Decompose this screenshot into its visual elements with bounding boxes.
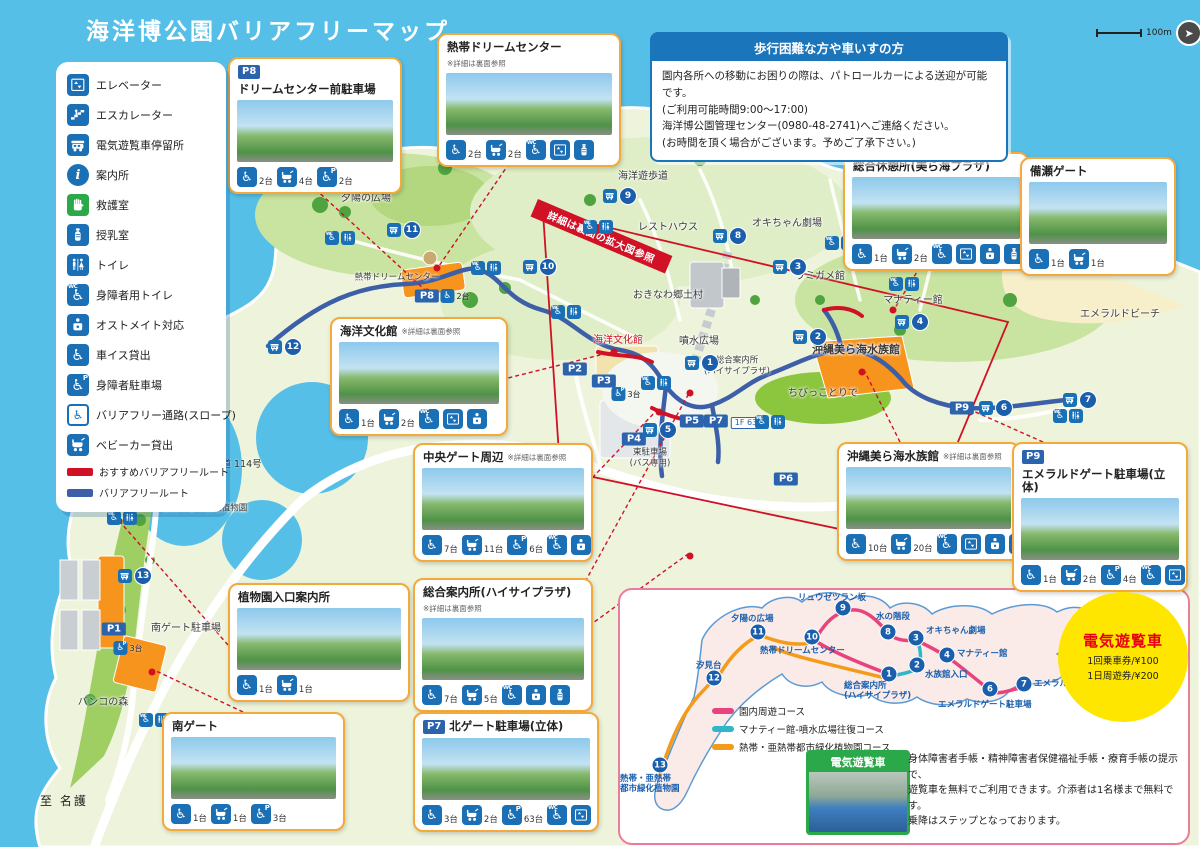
cart-icon	[895, 315, 909, 329]
ostomate-icon	[985, 534, 1005, 554]
facility	[550, 140, 570, 160]
accessible-parking-icon: ♿P	[502, 805, 522, 825]
accessible-toilet-icon: ♿WC	[419, 409, 439, 429]
facility-icons: ♿10台20台♿WC	[846, 534, 1011, 554]
legend-item-label: 救護室	[96, 197, 129, 213]
mini-stop-3: 3	[908, 630, 925, 647]
accessible-parking-icon: ♿P	[507, 535, 527, 555]
callout-title: 備瀬ゲート	[1030, 165, 1088, 178]
facility: ♿1台	[852, 244, 888, 264]
facility-count: 1台	[874, 252, 888, 264]
legend-item-label: 車イス貸出	[96, 347, 151, 363]
cart-stop-7: 7	[1063, 391, 1097, 409]
course-label: マナティー館-噴水広場往復コース	[739, 722, 884, 736]
ostomate-icon	[67, 314, 89, 336]
accessible-toilet-icon: ♿WC	[526, 140, 546, 160]
accessible-toilet-icon: ♿WC	[1141, 565, 1161, 585]
accessible-toilet-icon: ♿WC	[502, 685, 522, 705]
map-parking-badge-P7: P7	[704, 415, 728, 428]
legend-item-nursing: 授乳室	[67, 224, 217, 246]
wheelchair-icon: ♿	[1029, 249, 1049, 269]
mini-stop-number: 13	[652, 757, 669, 774]
callout-ドリームセンター前駐車場: P8 ドリームセンター前駐車場 ♿2台4台♿P2台	[228, 57, 402, 194]
ostomate-icon	[467, 409, 487, 429]
legend-item-escalator: エスカレーター	[67, 104, 217, 126]
facility-count: 2台	[914, 252, 928, 264]
accessible-toilet-icon: ♿WC	[547, 535, 567, 555]
facility-count: 1台	[193, 812, 207, 824]
facility-cluster: ♿WC	[583, 220, 613, 234]
stop-number: 13	[134, 567, 152, 585]
mini-stop-label: 汐見台	[696, 661, 722, 671]
callout-note: ※詳細は裏面参照	[423, 603, 482, 614]
note-line: 乗降はステップとなっております。	[908, 814, 1190, 830]
mini-stop-number: 1	[881, 666, 898, 683]
ostomate-icon	[526, 685, 546, 705]
callout-熱帯ドリームセンター: 熱帯ドリームセンター ※詳細は裏面参照 ♿2台2台♿WC	[437, 33, 621, 167]
facility: 2台	[462, 805, 498, 825]
facility: ♿P3台	[251, 804, 287, 824]
facility: ♿2台	[237, 167, 273, 187]
accessible-toilet-icon: ♿WC	[932, 244, 952, 264]
accessible-toilet-icon: ♿WC	[889, 277, 903, 291]
toilet-icon	[657, 376, 671, 390]
mini-stop-number: 8	[880, 624, 897, 641]
facility	[526, 685, 546, 705]
route-swatch	[67, 468, 93, 476]
facility-icons: ♿2台2台♿WC	[446, 140, 612, 160]
facility-count: 2台	[484, 813, 498, 825]
facility: ♿P4台	[1101, 565, 1137, 585]
legend-item-info: i 案内所	[67, 164, 217, 186]
wheelchair-icon: ♿	[852, 244, 872, 264]
cart-icon	[523, 260, 537, 274]
mini-stop-6: 6	[982, 681, 999, 698]
legend-route: おすすめバリアフリールート	[67, 464, 217, 479]
facility	[574, 140, 594, 160]
location-photo	[422, 468, 584, 530]
ostomate-icon	[571, 535, 591, 555]
facility: ♿P63台	[502, 805, 543, 825]
map-label: 熱帯ドリームセンター	[355, 273, 440, 284]
facility: ♿WC	[937, 534, 957, 554]
mini-stop-1: 1	[881, 666, 898, 683]
parking-badge: P7	[423, 720, 445, 734]
stop-number: 11	[403, 221, 421, 239]
facility-count: 2台	[1083, 573, 1097, 585]
stop-number: 9	[619, 187, 637, 205]
electric-cart-photo-label: 電気遊覧車	[809, 753, 907, 772]
facility-count: 7台	[444, 693, 458, 705]
callout-総合案内所(ハイサイプラザ): 総合案内所(ハイサイプラザ) ※詳細は裏面参照 ♿7台5台♿WC	[413, 578, 593, 712]
map-parking-badge-P6: P6	[774, 473, 798, 486]
map-label: おきなわ郷土村	[633, 290, 703, 303]
legend-route-label: バリアフリールート	[99, 485, 189, 500]
facility: ♿WC	[547, 535, 567, 555]
facility-cluster: ♿WC	[551, 305, 581, 319]
wheelchair-icon: ♿	[171, 804, 191, 824]
stop-number: 7	[1079, 391, 1097, 409]
stroller-icon	[211, 804, 231, 824]
facility-count: 1台	[1043, 573, 1057, 585]
stop-number: 3	[789, 258, 807, 276]
map-parking-badge-P8: P8	[415, 290, 439, 303]
legend-items: エレベーター エスカレーター 電気遊覧車停留所 i 案内所 救護室 授乳室 トイ…	[65, 74, 217, 456]
notice-line: 園内各所への移動にお困りの際は、パトロールカーによる送迎が可能です。	[662, 68, 996, 102]
callout-南ゲート: 南ゲート ♿1台1台♿P3台	[162, 712, 345, 831]
cart-stop-6: 6	[979, 399, 1013, 417]
mini-stop-number: 4	[939, 647, 956, 664]
facility	[571, 535, 591, 555]
legend-routes: おすすめバリアフリールートバリアフリールート	[65, 464, 217, 500]
wheelchair-icon: ♿	[1021, 565, 1041, 585]
notice-line: 海洋博公園管理センター(0980-48-2741)へご連絡ください。	[662, 118, 996, 135]
course-row: マナティー館-噴水広場往復コース	[712, 722, 891, 736]
cart-icon	[387, 223, 401, 237]
facility-cluster: ♿WC	[641, 376, 671, 390]
callout-title: 南ゲート	[172, 720, 218, 733]
elevator-icon	[1165, 565, 1185, 585]
facility-icons: ♿1台2台♿WC	[852, 244, 1020, 264]
fare-circle: 電気遊覧車 1回乗車券/¥1001日周遊券/¥200	[1058, 592, 1188, 722]
callout-title: 植物園入口案内所	[238, 591, 330, 604]
location-photo	[852, 177, 1020, 239]
legend-item-label: ベビーカー貸出	[96, 437, 173, 453]
mini-stop-label: 夕陽の広場	[731, 614, 774, 624]
map-label: 東駐車場 (バス専用)	[630, 447, 671, 468]
location-photo	[339, 342, 499, 404]
stop-number: 5	[659, 421, 677, 439]
location-photo	[171, 737, 336, 799]
facility: 1台	[1069, 249, 1105, 269]
elevator-icon	[550, 140, 570, 160]
facility-count: 20台	[913, 542, 932, 554]
elevator-icon	[956, 244, 976, 264]
accessible-toilet-icon: ♿WC	[583, 220, 597, 234]
mini-stop-number: 2	[909, 657, 926, 674]
fare-lines: 1回乗車券/¥1001日周遊券/¥200	[1087, 655, 1158, 684]
accessible-parking-icon: ♿P	[251, 804, 271, 824]
mini-stop-label: 熱帯・亜熱帯 都市緑化植物園	[620, 774, 680, 794]
count-label: 3台	[129, 643, 142, 654]
mini-stop-13: 13	[652, 757, 669, 774]
legend-item-label: バリアフリー通路(スロープ)	[96, 407, 236, 423]
mini-stop-number: 3	[908, 630, 925, 647]
legend-item-firstaid: 救護室	[67, 194, 217, 216]
scale-bar-label: 100m	[1146, 28, 1172, 38]
facility-count: 2台	[401, 417, 415, 429]
cart-stop-9: 9	[603, 187, 637, 205]
facility-icons: ♿2台4台♿P2台	[237, 167, 393, 187]
info-icon: i	[67, 164, 89, 186]
accessible-toilet-icon: ♿WC	[825, 236, 839, 250]
facility-cluster: ♿WC	[889, 277, 919, 291]
callout-総合休憩所(美ら海プラザ): 総合休憩所(美ら海プラザ) ♿1台2台♿WC	[843, 152, 1029, 271]
map-label: オキちゃん劇場	[752, 218, 822, 231]
wheelchair-icon: ♿	[67, 344, 89, 366]
legend-item-wheelchair: ♿ 車イス貸出	[67, 344, 217, 366]
callout-title: ドリームセンター前駐車場	[238, 83, 376, 96]
stroller-icon	[379, 409, 399, 429]
facility: ♿1台	[1021, 565, 1057, 585]
cart-stop-1: 1	[685, 354, 719, 372]
mini-stop-label: 熱帯ドリームセンター	[760, 646, 845, 656]
mini-stop-10: 10	[804, 629, 821, 646]
accessible-toilet-icon: ♿WC	[67, 284, 89, 306]
ostomate-icon	[980, 244, 1000, 264]
accessible-toilet-icon: ♿WC	[551, 305, 565, 319]
facility-cluster: ♿WC	[107, 511, 137, 525]
wheelchair-icon: ♿	[440, 289, 454, 303]
wheelchair-icon: ♿	[422, 805, 442, 825]
facility: ♿7台	[422, 685, 458, 705]
location-photo	[237, 608, 401, 670]
legend-item-label: 電気遊覧車停留所	[96, 137, 184, 153]
accessible-toilet-icon: ♿WC	[1053, 409, 1067, 423]
cart-icon	[268, 340, 282, 354]
location-photo	[846, 467, 1011, 529]
mini-stop-label: マナティー館	[957, 649, 1008, 659]
facility: 5台	[462, 685, 498, 705]
facility-count: 1台	[233, 812, 247, 824]
facility: ♿WC	[526, 140, 546, 160]
legend-item-accessible-parking: ♿P 身障者駐車場	[67, 374, 217, 396]
facility: ♿WC	[932, 244, 952, 264]
escalator-icon	[67, 104, 89, 126]
map-label: 海洋遊歩道	[618, 171, 668, 184]
legend-item-stroller: ベビーカー貸出	[67, 434, 217, 456]
stop-number: 2	[809, 328, 827, 346]
firstaid-icon	[67, 194, 89, 216]
facility-count: 1台	[1051, 257, 1065, 269]
facility-count: 2台	[259, 175, 273, 187]
facility-count: 5台	[484, 693, 498, 705]
mini-stop-label: 水の階段	[876, 612, 910, 622]
facility-icons: ♿1台2台♿P4台♿WC	[1021, 565, 1179, 585]
course-label: 園内周遊コース	[739, 704, 805, 718]
elevator-icon	[67, 74, 89, 96]
wheelchair-icon: ♿	[237, 167, 257, 187]
facility: 1台	[277, 675, 313, 695]
facility-count: 1台	[1091, 257, 1105, 269]
accessible-toilet-icon: ♿WC	[755, 415, 769, 429]
cart-stop-8: 8	[713, 227, 747, 245]
notice-body: 園内各所への移動にお困りの際は、パトロールカーによる送迎が可能です。(ご利用可能…	[652, 61, 1006, 160]
legend-panel: エレベーター エスカレーター 電気遊覧車停留所 i 案内所 救護室 授乳室 トイ…	[56, 62, 226, 512]
wheelchair-icon: ♿	[422, 685, 442, 705]
wheelchair-notice-box: 歩行困難な方や車いすの方 園内各所への移動にお困りの際は、パトロールカーによる送…	[650, 32, 1008, 162]
scale-bar-line	[1096, 32, 1142, 34]
legend-item-label: 身障者駐車場	[96, 377, 162, 393]
facility: ♿7台	[422, 535, 458, 555]
facility-count: 2台	[508, 148, 522, 160]
facility: 2台	[486, 140, 522, 160]
facility	[443, 409, 463, 429]
accessible-toilet-icon: ♿WC	[107, 511, 121, 525]
legend-item-label: オストメイト対応	[96, 317, 184, 333]
toilet-icon	[567, 305, 581, 319]
facility: ♿1台	[1029, 249, 1065, 269]
toilet-icon	[487, 261, 501, 275]
stop-number: 1	[701, 354, 719, 372]
page-title: 海洋博公園バリアフリーマップ	[86, 12, 450, 46]
callout-title: 総合案内所(ハイサイプラザ)	[423, 586, 571, 599]
map-parking-badge-P5: P5	[680, 415, 704, 428]
map-parking-badge-P3: P3	[592, 375, 616, 388]
accessible-toilet-icon: ♿WC	[325, 231, 339, 245]
legend-item-toilet: トイレ	[67, 254, 217, 276]
cart-icon	[773, 260, 787, 274]
mini-stop-number: 12	[706, 670, 723, 687]
route-swatch	[67, 489, 93, 497]
cart-icon	[118, 569, 132, 583]
facility-count: 3台	[273, 812, 287, 824]
callout-備瀬ゲート: 備瀬ゲート ♿1台1台	[1020, 157, 1176, 276]
accessible-toilet-icon: ♿WC	[937, 534, 957, 554]
facility-count: 6台	[529, 543, 543, 555]
mini-stop-number: 7	[1016, 676, 1033, 693]
course-row: 園内周遊コース	[712, 704, 891, 718]
toilet-icon	[905, 277, 919, 291]
map-label: エメラルドビーチ	[1080, 309, 1160, 322]
facility: ♿1台	[339, 409, 375, 429]
callout-note: ※詳細は裏面参照	[943, 451, 1002, 462]
facility: 11台	[462, 535, 503, 555]
toilet-icon	[771, 415, 785, 429]
cart-stop-2: 2	[793, 328, 827, 346]
stroller-icon	[67, 434, 89, 456]
stop-number: 12	[284, 338, 302, 356]
mini-stop-label: オキちゃん劇場	[926, 626, 986, 636]
facility: ♿WC	[1141, 565, 1161, 585]
callout-北ゲート駐車場(立体): P7 北ゲート駐車場(立体) ♿3台2台♿P63台♿WC	[413, 712, 599, 832]
legend-item-cart: 電気遊覧車停留所	[67, 134, 217, 156]
stroller-icon	[462, 805, 482, 825]
callout-title: 沖縄美ら海水族館	[847, 450, 939, 463]
wheelchair-icon: ♿	[422, 535, 442, 555]
stroller-icon	[277, 675, 297, 695]
stroller-icon	[892, 244, 912, 264]
nursing-icon	[67, 224, 89, 246]
cart-stop-4: 4	[895, 313, 929, 331]
accessible-parking-icon: ♿P	[317, 167, 337, 187]
course-swatch	[712, 744, 734, 750]
facility-icons: ♿1台1台	[237, 675, 401, 695]
count-label: 3台	[627, 389, 640, 400]
to-nago-label: 至 名護	[40, 792, 88, 809]
stroller-icon	[891, 534, 911, 554]
map-label: マナティー館	[883, 295, 942, 308]
nursing-icon	[574, 140, 594, 160]
cart-stop-3: 3	[773, 258, 807, 276]
legend-item-elevator: エレベーター	[67, 74, 217, 96]
location-photo	[446, 73, 612, 135]
legend-item-accessible-toilet: ♿WC 身障者用トイレ	[67, 284, 217, 306]
mini-stop-number: 10	[804, 629, 821, 646]
legend-item-ostomate: オストメイト対応	[67, 314, 217, 336]
facility-count-marker: ♿P3台	[113, 641, 142, 655]
map-label: ちびっことりで	[788, 388, 858, 401]
mini-stop-2: 2	[909, 657, 926, 674]
location-photo	[237, 100, 393, 162]
cart-icon	[979, 401, 993, 415]
mini-stop-4: 4	[939, 647, 956, 664]
mini-stop-number: 11	[750, 624, 767, 641]
map-parking-badge-P9: P9	[950, 402, 974, 415]
facility: ♿3台	[422, 805, 458, 825]
mini-stop-11: 11	[750, 624, 767, 641]
facility: ♿1台	[237, 675, 273, 695]
stroller-icon	[1069, 249, 1089, 269]
scale-bar: 100m ➤	[1096, 20, 1200, 46]
callout-沖縄美ら海水族館: 沖縄美ら海水族館 ※詳細は裏面参照 ♿10台20台♿WC	[837, 442, 1020, 561]
location-photo	[422, 618, 584, 680]
stop-number: 6	[995, 399, 1013, 417]
callout-title: エメラルドゲート駐車場(立体)	[1022, 468, 1179, 494]
facility	[550, 685, 570, 705]
accessible-parking-icon: ♿P	[67, 374, 89, 396]
wheelchair-icon: ♿	[339, 409, 359, 429]
callout-note: ※詳細は裏面参照	[402, 326, 461, 337]
facility-count: 2台	[468, 148, 482, 160]
stop-number: 4	[911, 313, 929, 331]
parking-badge: P8	[238, 65, 260, 79]
location-photo	[1021, 498, 1179, 560]
notice-title: 歩行困難な方や車いすの方	[652, 34, 1006, 61]
accessible-toilet-icon: ♿WC	[641, 376, 655, 390]
facility	[985, 534, 1005, 554]
accessible-toilet-icon: ♿WC	[471, 261, 485, 275]
facility	[961, 534, 981, 554]
stroller-icon	[462, 535, 482, 555]
location-photo	[422, 738, 590, 800]
count-label: 2台	[456, 291, 469, 302]
facility-cluster: ♿WC	[755, 415, 785, 429]
legend-item-label: エレベーター	[96, 77, 162, 93]
facility-cluster: ♿WC	[1053, 409, 1083, 423]
facility-count: 4台	[299, 175, 313, 187]
facility-count: 10台	[868, 542, 887, 554]
facility-count: 63台	[524, 813, 543, 825]
facility: 20台	[891, 534, 932, 554]
map-parking-badge-P2: P2	[563, 363, 587, 376]
course-swatch	[712, 708, 734, 714]
callout-title: 中央ゲート周辺	[423, 451, 504, 464]
stop-number: 8	[729, 227, 747, 245]
accessible-toilet-icon: ♿WC	[547, 805, 567, 825]
notice-line: (ご利用可能時間9:00〜17:00)	[662, 102, 996, 119]
notice-line: (お時間を頂く場合がございます。予めご了承下さい。)	[662, 135, 996, 152]
legend-item-slope: ♿ バリアフリー通路(スロープ)	[67, 404, 217, 426]
facility: ♿P2台	[317, 167, 353, 187]
slope-icon: ♿	[67, 404, 89, 426]
facility-count: 1台	[259, 683, 273, 695]
facility-count: 2台	[339, 175, 353, 187]
facility-cluster: ♿WC	[471, 261, 501, 275]
cart-icon	[67, 134, 89, 156]
facility	[467, 409, 487, 429]
cart-icon	[603, 189, 617, 203]
map-label: 海洋文化館	[593, 335, 643, 348]
facility	[956, 244, 976, 264]
callout-note: ※詳細は裏面参照	[447, 58, 506, 69]
cart-free-use-note: 身体障害者手帳・精神障害者保健福祉手帳・療育手帳の提示で、遊覧車を無料でご利用で…	[908, 752, 1190, 830]
wheelchair-icon: ♿	[446, 140, 466, 160]
accessible-toilet-icon: ♿WC	[139, 713, 153, 727]
stroller-icon	[277, 167, 297, 187]
legend-item-label: エスカレーター	[96, 107, 173, 123]
facility	[571, 805, 591, 825]
